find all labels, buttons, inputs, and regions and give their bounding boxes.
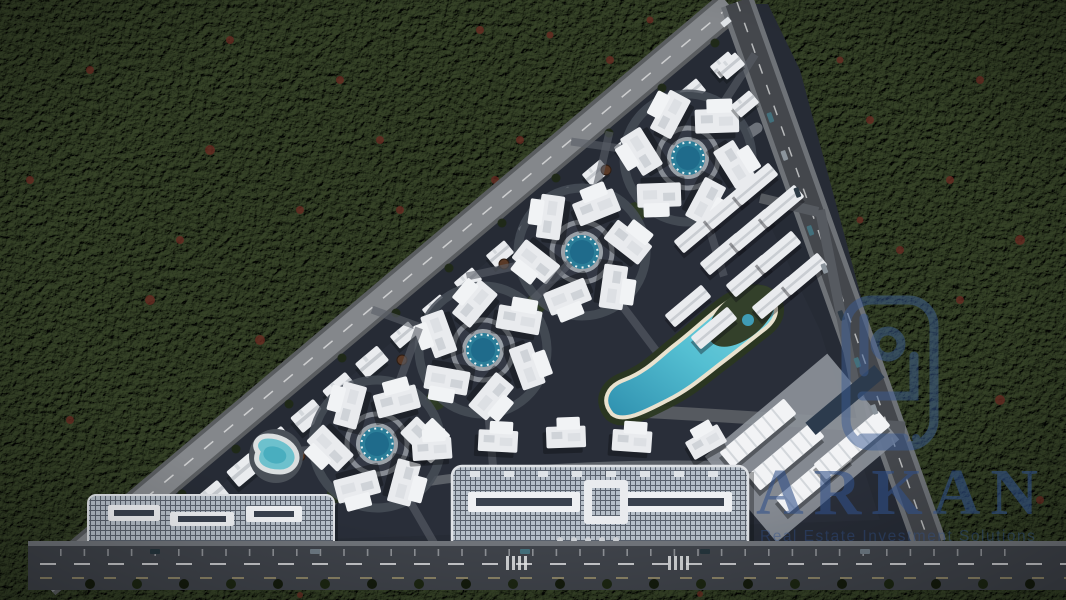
watermark-brand: ARKAN [756,456,1048,529]
aerial-masterplan-render: ARKAN Real Estate Investment Solutions [0,0,1066,600]
watermark-tagline: Real Estate Investment Solutions [760,528,1036,545]
